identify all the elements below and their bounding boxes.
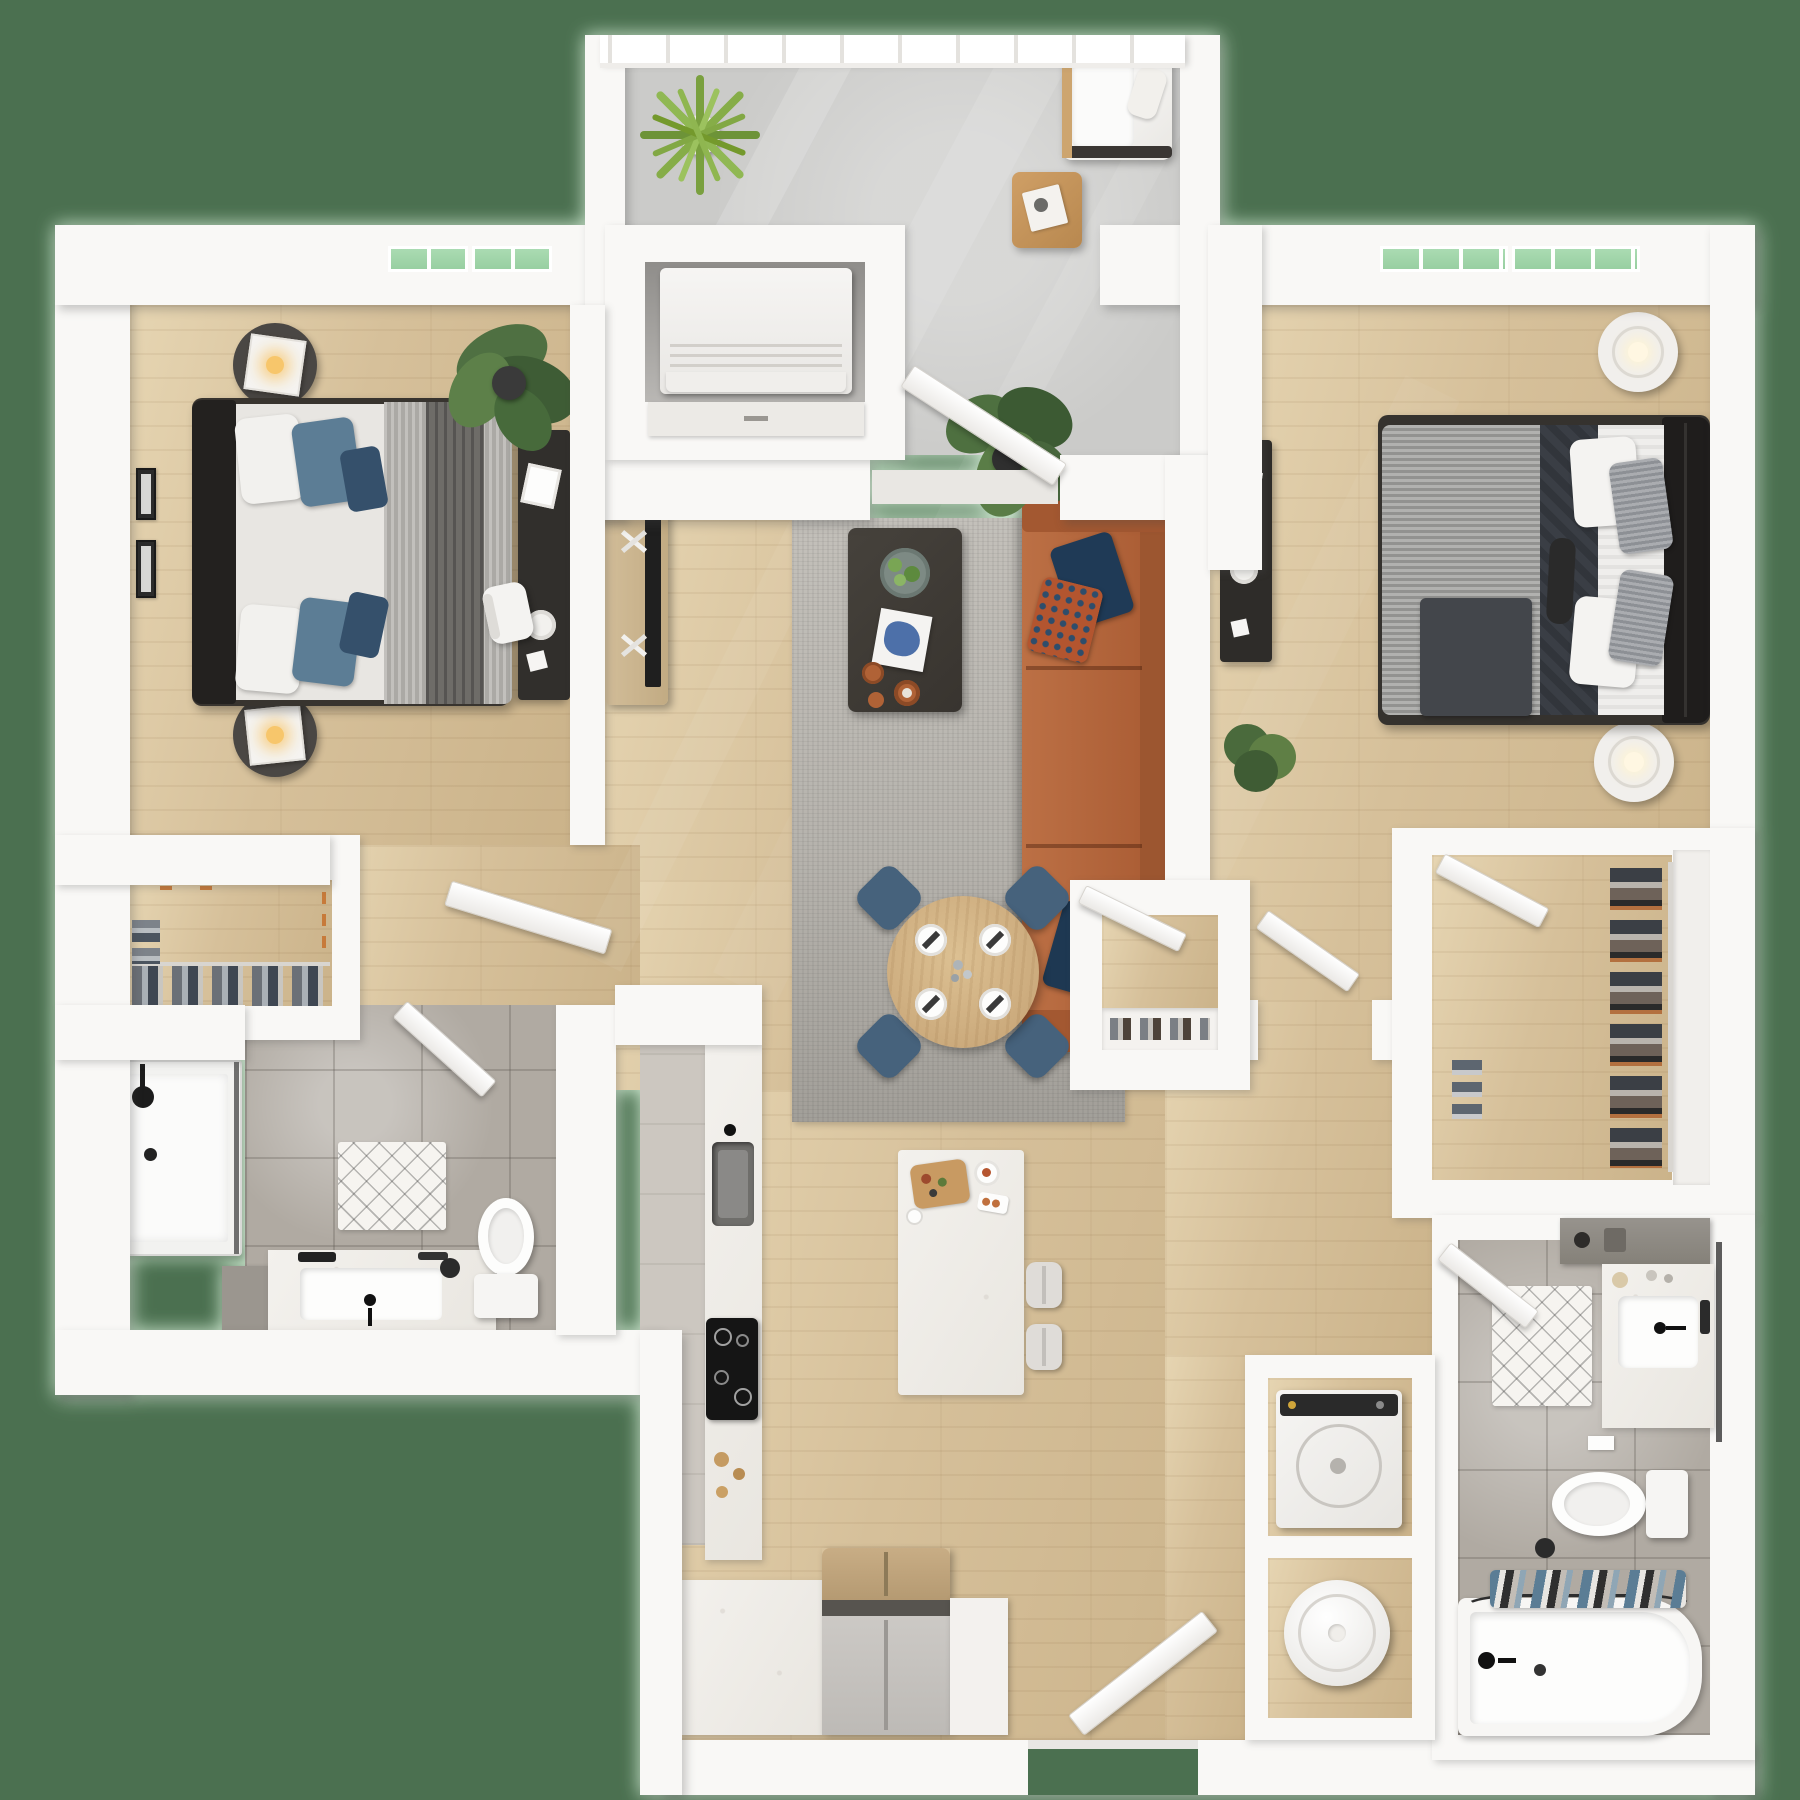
washer xyxy=(1276,1390,1402,1528)
closet-hook xyxy=(322,914,326,926)
balcony-railing-rail xyxy=(600,63,1185,68)
wall-left-of-kitchen xyxy=(640,1330,682,1795)
table-lamp-bottom xyxy=(244,704,306,766)
floor-plan-canvas xyxy=(0,0,1800,1800)
bedroom2-shrub-plant xyxy=(1218,716,1302,800)
shower-head xyxy=(132,1086,154,1108)
kitchen-jar xyxy=(714,1452,729,1467)
closet-hook xyxy=(322,892,326,904)
island-plate xyxy=(974,1160,1000,1186)
bathtub-faucet xyxy=(1478,1652,1495,1669)
cutting-board xyxy=(909,1158,971,1209)
balcony-door-threshold xyxy=(872,470,1058,504)
water-heater xyxy=(1284,1580,1390,1686)
island-stool xyxy=(1026,1262,1062,1308)
walkin-closet-floor-clothes xyxy=(1452,1060,1482,1120)
closet-hook xyxy=(200,886,212,890)
kitchen-jar xyxy=(716,1486,728,1498)
toilet2-brush xyxy=(1535,1538,1555,1558)
entry-door-opening xyxy=(1028,1748,1198,1795)
wall-outer-left xyxy=(55,225,130,1395)
bedroom1-window xyxy=(388,246,468,272)
wall-living-right xyxy=(1165,455,1210,880)
kitchen-top-cabinet xyxy=(615,985,762,1045)
wall-bath1-top xyxy=(55,1005,245,1060)
vanity1-tray xyxy=(298,1252,336,1262)
alcove-cabinet-unit xyxy=(660,268,852,394)
toilet-paper-holder xyxy=(1588,1436,1614,1450)
kitchen-faucet xyxy=(724,1124,736,1136)
hall-closet-shelf xyxy=(1102,1008,1218,1050)
copper-mug xyxy=(894,680,920,706)
vanity2-faucet xyxy=(1654,1322,1666,1334)
kitchen-jar xyxy=(733,1468,745,1480)
shower-glass xyxy=(234,1062,239,1254)
bathroom2-counter xyxy=(1560,1218,1710,1264)
table-lamp-top xyxy=(243,333,306,396)
bed2-headboard xyxy=(1662,417,1710,723)
bathroom2-glass-panel xyxy=(1716,1242,1722,1442)
bedroom2-window xyxy=(1512,246,1640,272)
balcony-spiky-plant xyxy=(640,75,760,195)
island-cup xyxy=(906,1208,923,1225)
wall-bedroom2-left xyxy=(1208,225,1262,570)
coffee-table-tray xyxy=(880,548,930,598)
wall-bath1-right xyxy=(556,1005,616,1335)
coffee-table xyxy=(848,528,962,712)
alcove-sliding-door xyxy=(648,402,864,436)
walkin-closet-clothes xyxy=(1610,868,1662,1168)
bedroom1-picture-frame xyxy=(136,540,156,598)
bathroom1-bath-mat xyxy=(338,1142,446,1230)
entry-hall-floor xyxy=(1165,1355,1245,1740)
vanity1-faucet xyxy=(364,1294,376,1306)
bathtub xyxy=(1458,1594,1704,1738)
bedroom2-lamp-top xyxy=(1598,312,1678,392)
wall-bedroom1-living xyxy=(570,305,605,845)
closet-hook xyxy=(322,936,326,948)
kitchen-island xyxy=(898,1150,1024,1395)
bathroom2-glass-handle xyxy=(1700,1300,1710,1334)
kitchen-sink xyxy=(712,1142,754,1226)
kitchen-cabinet xyxy=(950,1598,1008,1735)
balcony-railing xyxy=(600,35,1185,63)
bed2-bolster-pillow xyxy=(1546,537,1576,624)
bedroom1-window xyxy=(472,246,552,272)
sofa-pillow-patterned xyxy=(1026,576,1105,665)
coffee-table-book xyxy=(872,608,933,672)
toilet1-plunger xyxy=(440,1258,460,1278)
hall-closet-shoes xyxy=(1110,1018,1210,1040)
bedroom2-window xyxy=(1380,246,1508,272)
bathtub-caddy-products xyxy=(1490,1570,1686,1608)
copper-mug xyxy=(868,692,884,708)
refrigerator xyxy=(822,1548,950,1735)
toilet2 xyxy=(1548,1462,1694,1550)
balcony-living-wall-left xyxy=(585,455,870,520)
bedroom1-picture-frame xyxy=(136,468,156,520)
island-stool xyxy=(1026,1324,1062,1370)
closet-hook xyxy=(160,886,172,890)
cooktop xyxy=(706,1318,758,1420)
closet-side-clothes xyxy=(132,920,160,964)
kitchen-counter xyxy=(705,1045,762,1560)
bedroom2-lamp-bottom xyxy=(1594,722,1674,802)
wall-bottom-left-section xyxy=(55,1330,660,1395)
bed1-headboard xyxy=(192,400,236,704)
dining-table xyxy=(887,896,1039,1048)
bedroom1-desk xyxy=(518,430,570,700)
shower-drain xyxy=(144,1148,157,1161)
apartment-floor-plan xyxy=(0,0,1800,1800)
bathtub-drain xyxy=(1534,1664,1546,1676)
bathroom2-vanity xyxy=(1602,1264,1714,1428)
kitchen-counter-bottom xyxy=(680,1580,822,1735)
entry-threshold xyxy=(1028,1740,1198,1749)
toilet1 xyxy=(470,1192,546,1324)
walkin-closet-system xyxy=(1673,850,1710,1185)
tv-screen xyxy=(645,505,661,687)
closet-hanging-clothes xyxy=(132,966,330,1006)
island-tray xyxy=(977,1192,1010,1215)
copper-mug xyxy=(862,662,884,684)
bedroom1-monstera-plant xyxy=(430,310,590,460)
bed2-dark-fold xyxy=(1420,598,1532,716)
balcony-side-table xyxy=(1012,172,1082,248)
wall-bedroom1-bottom xyxy=(55,835,330,885)
